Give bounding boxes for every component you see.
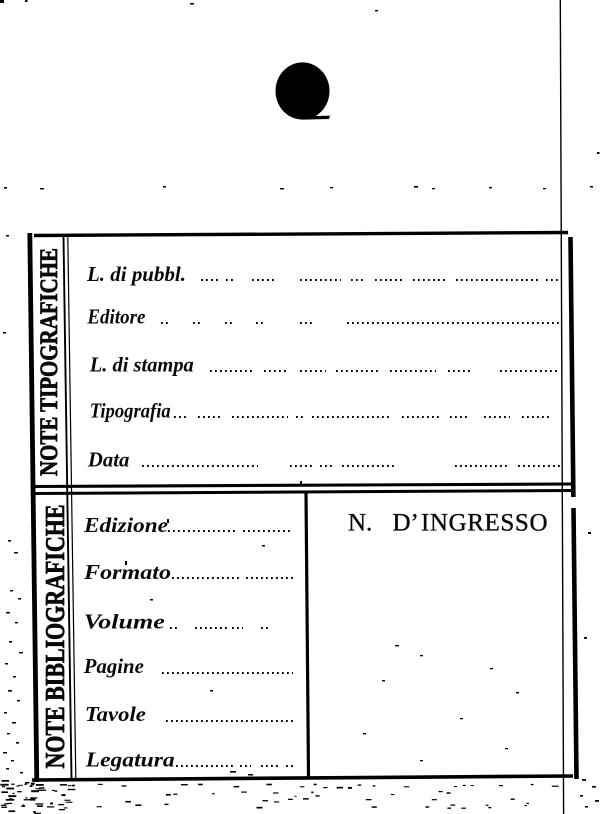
svg-text:Data: Data (87, 448, 129, 472)
svg-text:L. di stampa: L. di stampa (89, 353, 194, 377)
svg-text:Tipografia: Tipografia (90, 399, 171, 423)
svg-text:Edizione: Edizione (83, 513, 168, 537)
svg-text:Pagine: Pagine (83, 654, 144, 678)
svg-text:Editore: Editore (86, 305, 145, 329)
svg-text:NOTE BIBLIOGRAFICHE: NOTE BIBLIOGRAFICHE (39, 505, 70, 769)
svg-text:Legatura: Legatura (85, 748, 175, 772)
svg-text:Volume: Volume (84, 610, 165, 634)
svg-text:L. di pubbl.: L. di pubbl. (86, 262, 186, 286)
svg-text:Tavole: Tavole (85, 702, 146, 726)
svg-text:NOTE TIPOGRAFICHE: NOTE TIPOGRAFICHE (36, 248, 63, 476)
